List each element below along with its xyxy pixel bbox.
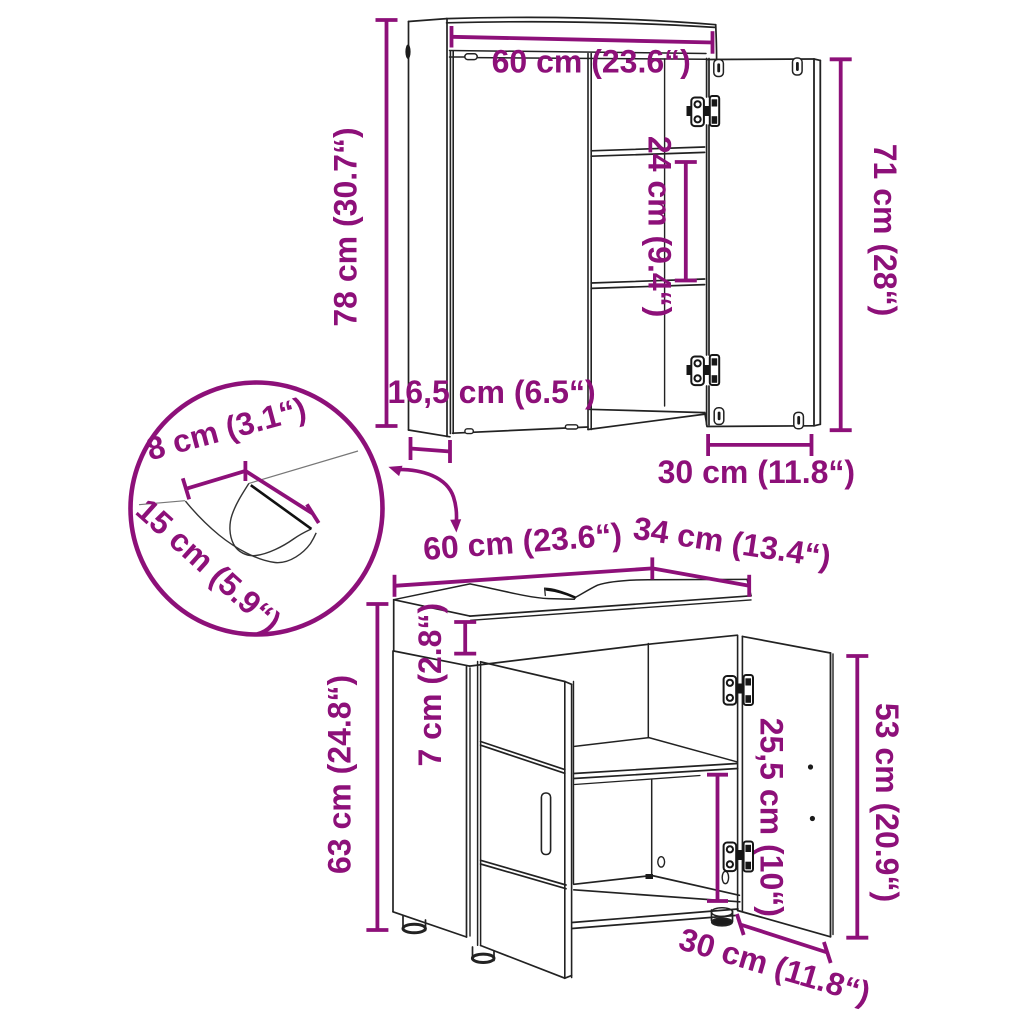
svg-text:24 cm (9.4“): 24 cm (9.4“) bbox=[642, 136, 678, 317]
svg-text:53 cm (20.9“): 53 cm (20.9“) bbox=[869, 703, 905, 902]
svg-text:63 cm (24.8“): 63 cm (24.8“) bbox=[322, 675, 358, 874]
svg-text:60 cm (23.6“): 60 cm (23.6“) bbox=[492, 43, 691, 79]
svg-text:16,5 cm (6.5“): 16,5 cm (6.5“) bbox=[388, 374, 596, 410]
svg-text:71 cm (28“): 71 cm (28“) bbox=[867, 144, 903, 317]
svg-text:25,5 cm (10“): 25,5 cm (10“) bbox=[754, 718, 790, 917]
svg-text:7 cm (2.8“): 7 cm (2.8“) bbox=[412, 603, 448, 767]
svg-text:30 cm (11.8“): 30 cm (11.8“) bbox=[658, 454, 855, 490]
svg-text:78 cm (30.7“): 78 cm (30.7“) bbox=[327, 127, 363, 326]
